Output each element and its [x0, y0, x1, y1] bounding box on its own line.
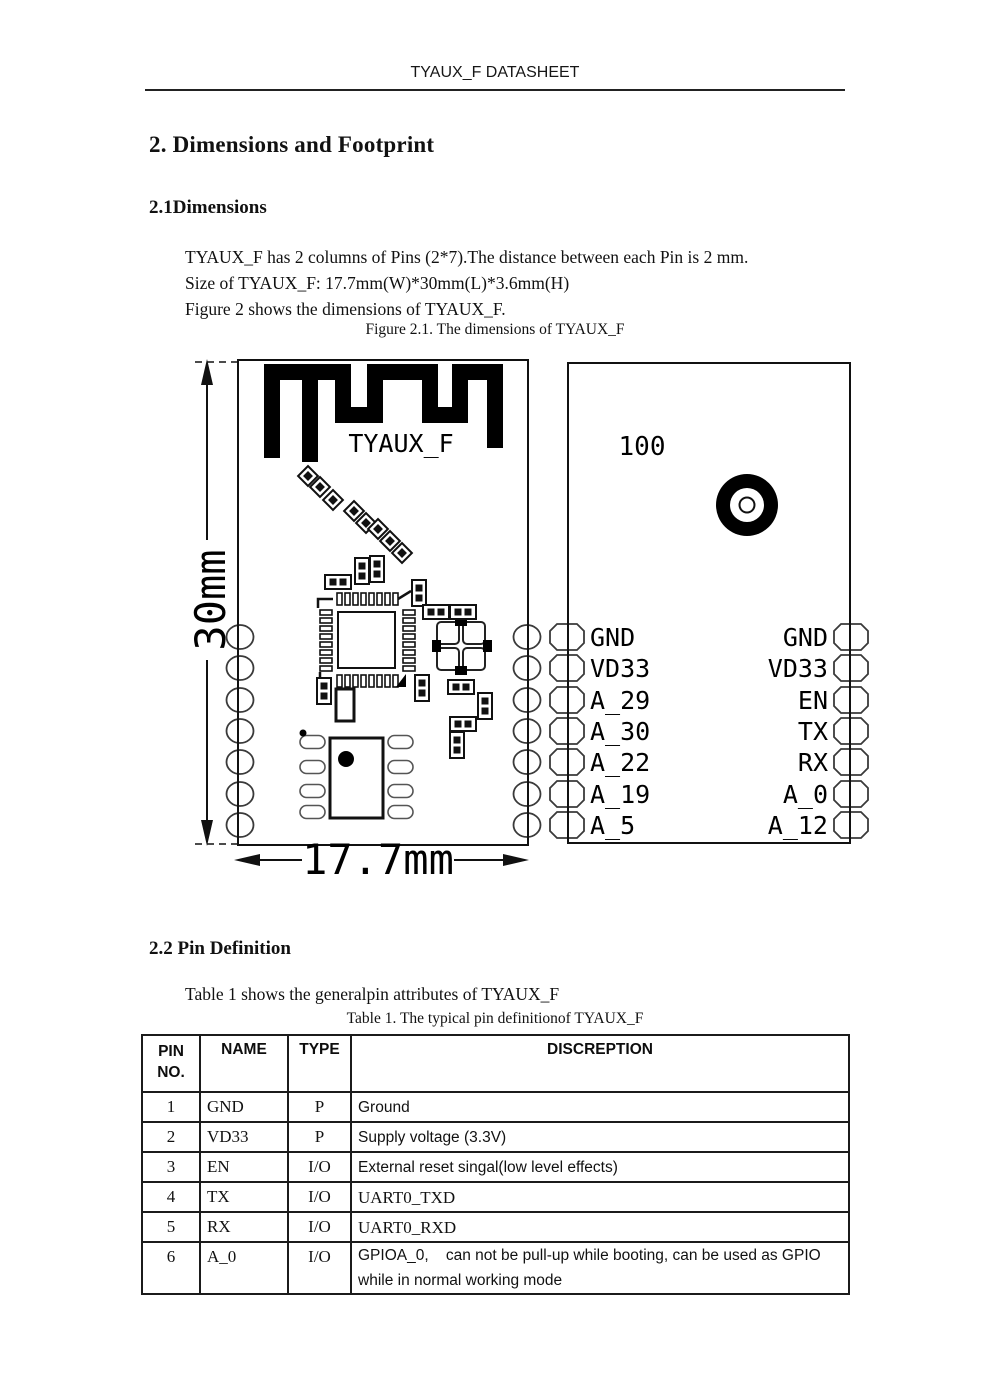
pin-name-cell: RX	[200, 1212, 288, 1242]
pin-type-cell: P	[288, 1092, 351, 1122]
qfn-ic-footprint	[318, 591, 415, 687]
pin-description-cell: GPIOA_0, can not be pull-up while bootin…	[351, 1242, 849, 1294]
pin-number-cell: 5	[142, 1212, 200, 1242]
pin-label-right-2: EN	[798, 686, 828, 715]
pin-row-4: 4 TX I/O UART0_TXD	[142, 1182, 849, 1212]
pin-label-right-5: A_0	[783, 780, 828, 809]
header-rule	[145, 89, 845, 91]
pin-label-left-6: A_5	[590, 811, 635, 840]
subsection-dimensions-title: 2.1Dimensions	[149, 197, 267, 219]
header-title: TYAUX_F DATASHEET	[145, 64, 845, 82]
col-header-pin-line2: NO.	[149, 1062, 193, 1083]
pin-name-cell: EN	[200, 1152, 288, 1182]
pin-label-left-1: VD33	[590, 654, 650, 683]
pin-type-cell: I/O	[288, 1242, 351, 1294]
table-caption: Table 1. The typical pin definitionof TY…	[145, 1010, 845, 1028]
pin-label-right-6: A_12	[768, 811, 828, 840]
col-header-description: DISCREPTION	[351, 1035, 849, 1092]
module-silkscreen-label: TYAUX_F	[348, 429, 453, 458]
body-line-2: Size of TYAUX_F: 17.7mm(W)*30mm(L)*3.6mm…	[185, 270, 865, 296]
pin-description-cell: UART0_RXD	[351, 1212, 849, 1242]
dimensions-figure: TYAUX_F	[150, 345, 870, 905]
col-header-pin-line1: PIN	[149, 1041, 193, 1062]
datasheet-page: TYAUX_F DATASHEET 2. Dimensions and Foot…	[0, 0, 990, 1400]
pin-label-right-0: GND	[783, 623, 828, 652]
pin-number-cell: 2	[142, 1122, 200, 1152]
col-header-name: NAME	[200, 1035, 288, 1092]
pin-definition-table: PIN NO. NAME TYPE DISCREPTION 1 GND P Gr…	[141, 1034, 850, 1295]
pin-row-6: 6 A_0 I/O GPIOA_0, can not be pull-up wh…	[142, 1242, 849, 1294]
height-dimension-label: 30mm	[186, 549, 235, 650]
soic8-footprint	[300, 730, 414, 819]
pin-name-cell: VD33	[200, 1122, 288, 1152]
pin-name-cell: TX	[200, 1182, 288, 1212]
pin-number-cell: 4	[142, 1182, 200, 1212]
body-line-3: Figure 2 shows the dimensions of TYAUX_F…	[185, 296, 865, 322]
pin-type-cell: I/O	[288, 1152, 351, 1182]
width-dimension-label: 17.7mm	[302, 835, 454, 884]
table-intro: Table 1 shows the generalpin attributes …	[185, 984, 559, 1005]
body-line-1: TYAUX_F has 2 columns of Pins (2*7).The …	[185, 244, 865, 270]
pin-label-left-3: A_30	[590, 717, 650, 746]
crystal-footprint	[432, 617, 492, 675]
pin-row-3: 3 EN I/O External reset singal(low level…	[142, 1152, 849, 1182]
pin-number-cell: 6	[142, 1242, 200, 1294]
pin-description-cell: Ground	[351, 1092, 849, 1122]
pin-description-cell: External reset singal(low level effects)	[351, 1152, 849, 1182]
pin-name-cell: GND	[200, 1092, 288, 1122]
pin-label-right-4: RX	[798, 748, 828, 777]
pin-row-1: 1 GND P Ground	[142, 1092, 849, 1122]
pin-row-5: 5 RX I/O UART0_RXD	[142, 1212, 849, 1242]
pin-number-cell: 3	[142, 1152, 200, 1182]
pin-label-left-2: A_29	[590, 686, 650, 715]
table-header-row: PIN NO. NAME TYPE DISCREPTION	[142, 1035, 849, 1092]
col-header-type: TYPE	[288, 1035, 351, 1092]
pin-number-cell: 1	[142, 1092, 200, 1122]
pin-name-cell: A_0	[200, 1242, 288, 1294]
section-title: 2. Dimensions and Footprint	[149, 132, 434, 158]
pcb-marking-label: 100	[619, 432, 666, 462]
pin-description-cell: UART0_TXD	[351, 1182, 849, 1212]
pin-row-2: 2 VD33 P Supply voltage (3.3V)	[142, 1122, 849, 1152]
pin-label-left-0: GND	[590, 623, 635, 652]
pin-type-cell: I/O	[288, 1182, 351, 1212]
edge-pins-left	[227, 625, 254, 837]
dimensions-body: TYAUX_F has 2 columns of Pins (2*7).The …	[185, 244, 865, 322]
pin-type-cell: P	[288, 1122, 351, 1152]
pin-label-left-4: A_22	[590, 748, 650, 777]
diagonal-components	[298, 466, 412, 563]
pin-label-right-3: TX	[798, 717, 828, 746]
pin-label-left-5: A_19	[590, 780, 650, 809]
pin-type-cell: I/O	[288, 1212, 351, 1242]
mounting-hole-icon	[716, 474, 778, 536]
subsection-pin-definition-title: 2.2 Pin Definition	[149, 938, 291, 960]
col-header-pin-no: PIN NO.	[142, 1035, 200, 1092]
figure-caption: Figure 2.1. The dimensions of TYAUX_F	[145, 321, 845, 339]
pin-label-right-1: VD33	[768, 654, 828, 683]
pin-description-cell: Supply voltage (3.3V)	[351, 1122, 849, 1152]
